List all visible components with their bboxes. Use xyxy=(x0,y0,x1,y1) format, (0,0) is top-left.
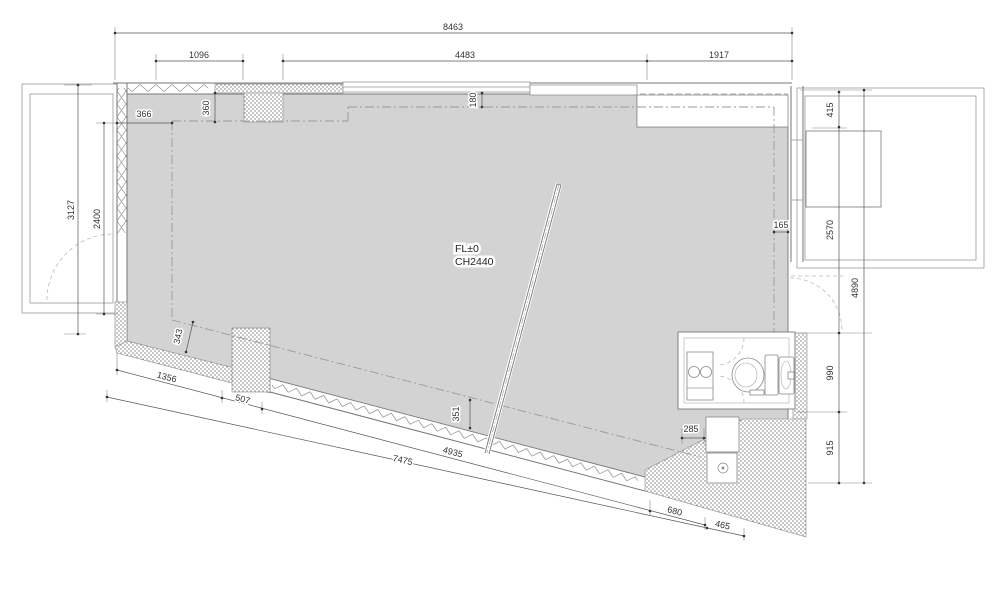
balcony-door-swing xyxy=(47,234,113,300)
dim-inset-bottom: 351 xyxy=(451,406,461,421)
bathroom xyxy=(678,332,795,409)
left-wall-hatch xyxy=(115,302,127,347)
dim-right-top: 415 xyxy=(825,102,835,117)
bathroom-sink xyxy=(779,357,794,394)
top-right-closet xyxy=(637,95,788,127)
left-wall-glazing xyxy=(118,88,127,233)
dim-overall-width: 8463 xyxy=(443,22,463,32)
top-wall-insulation xyxy=(128,85,208,92)
dim-inset-left: 366 xyxy=(136,109,151,119)
dim-bottom-seg-3: 4935 xyxy=(442,445,464,460)
dim-right-total: 4890 xyxy=(850,278,860,298)
dim-inset-right: 165 xyxy=(773,220,788,230)
dim-right-kitchen: 915 xyxy=(825,440,835,455)
kitchen-counter xyxy=(706,417,739,452)
top-window-2 xyxy=(530,85,637,95)
dim-inset-top-left: 360 xyxy=(201,100,211,115)
kitchen xyxy=(706,417,739,483)
toilet xyxy=(732,355,778,395)
left-balcony xyxy=(22,84,117,313)
dim-left-opening: 2400 xyxy=(92,209,102,229)
left-balcony-inner xyxy=(30,94,113,303)
laundry-unit xyxy=(687,352,713,400)
top-window-1 xyxy=(343,82,530,92)
ac-unit xyxy=(806,131,881,207)
dim-right-bath: 990 xyxy=(825,365,835,380)
bottom-column xyxy=(232,328,270,392)
dim-top-seg-1: 1096 xyxy=(189,50,209,60)
dim-inset-top: 180 xyxy=(468,92,478,107)
dim-kitchen-front: 285 xyxy=(683,424,698,434)
dim-top-seg-3: 1917 xyxy=(709,50,729,60)
dim-right-balcony: 2570 xyxy=(825,220,835,240)
kitchen-faucet xyxy=(722,467,725,470)
top-column xyxy=(244,93,283,122)
top-wall-hatch xyxy=(215,84,343,93)
entry-door-swing xyxy=(790,278,842,330)
dim-bottom-seg-2: 507 xyxy=(234,392,251,406)
left-balcony-outer xyxy=(22,84,117,313)
dim-bottom-seg-5: 465 xyxy=(714,519,731,532)
floor-plan-canvas: 8463 1096 4483 1917 3127 2400 366 360 18… xyxy=(0,0,1000,603)
dim-left-depth: 3127 xyxy=(66,200,76,220)
floor-plan-page: 8463 1096 4483 1917 3127 2400 366 360 18… xyxy=(0,0,1000,603)
floor-level-label: FL±0 xyxy=(455,243,479,255)
dim-bottom-seg-1: 1356 xyxy=(156,370,178,385)
dim-bottom-total: 7475 xyxy=(392,453,414,467)
dim-bottom-seg-4: 680 xyxy=(666,504,683,518)
dim-top-seg-2: 4483 xyxy=(455,50,475,60)
ceiling-height-label: CH2440 xyxy=(455,256,494,268)
